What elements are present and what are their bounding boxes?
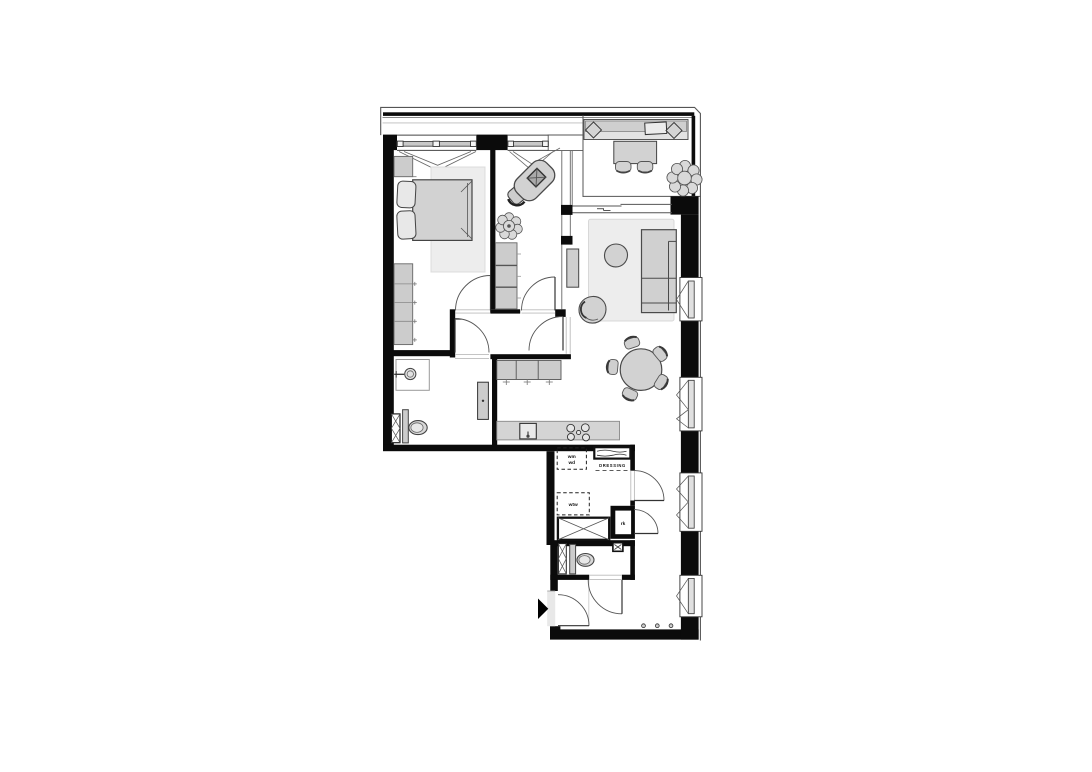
svg-text:DRESSING: DRESSING <box>599 463 626 468</box>
svg-text:wtw: wtw <box>568 502 578 508</box>
svg-text:rk: rk <box>621 521 626 527</box>
svg-text:wd: wd <box>567 460 575 466</box>
svg-text:wm: wm <box>567 455 576 460</box>
